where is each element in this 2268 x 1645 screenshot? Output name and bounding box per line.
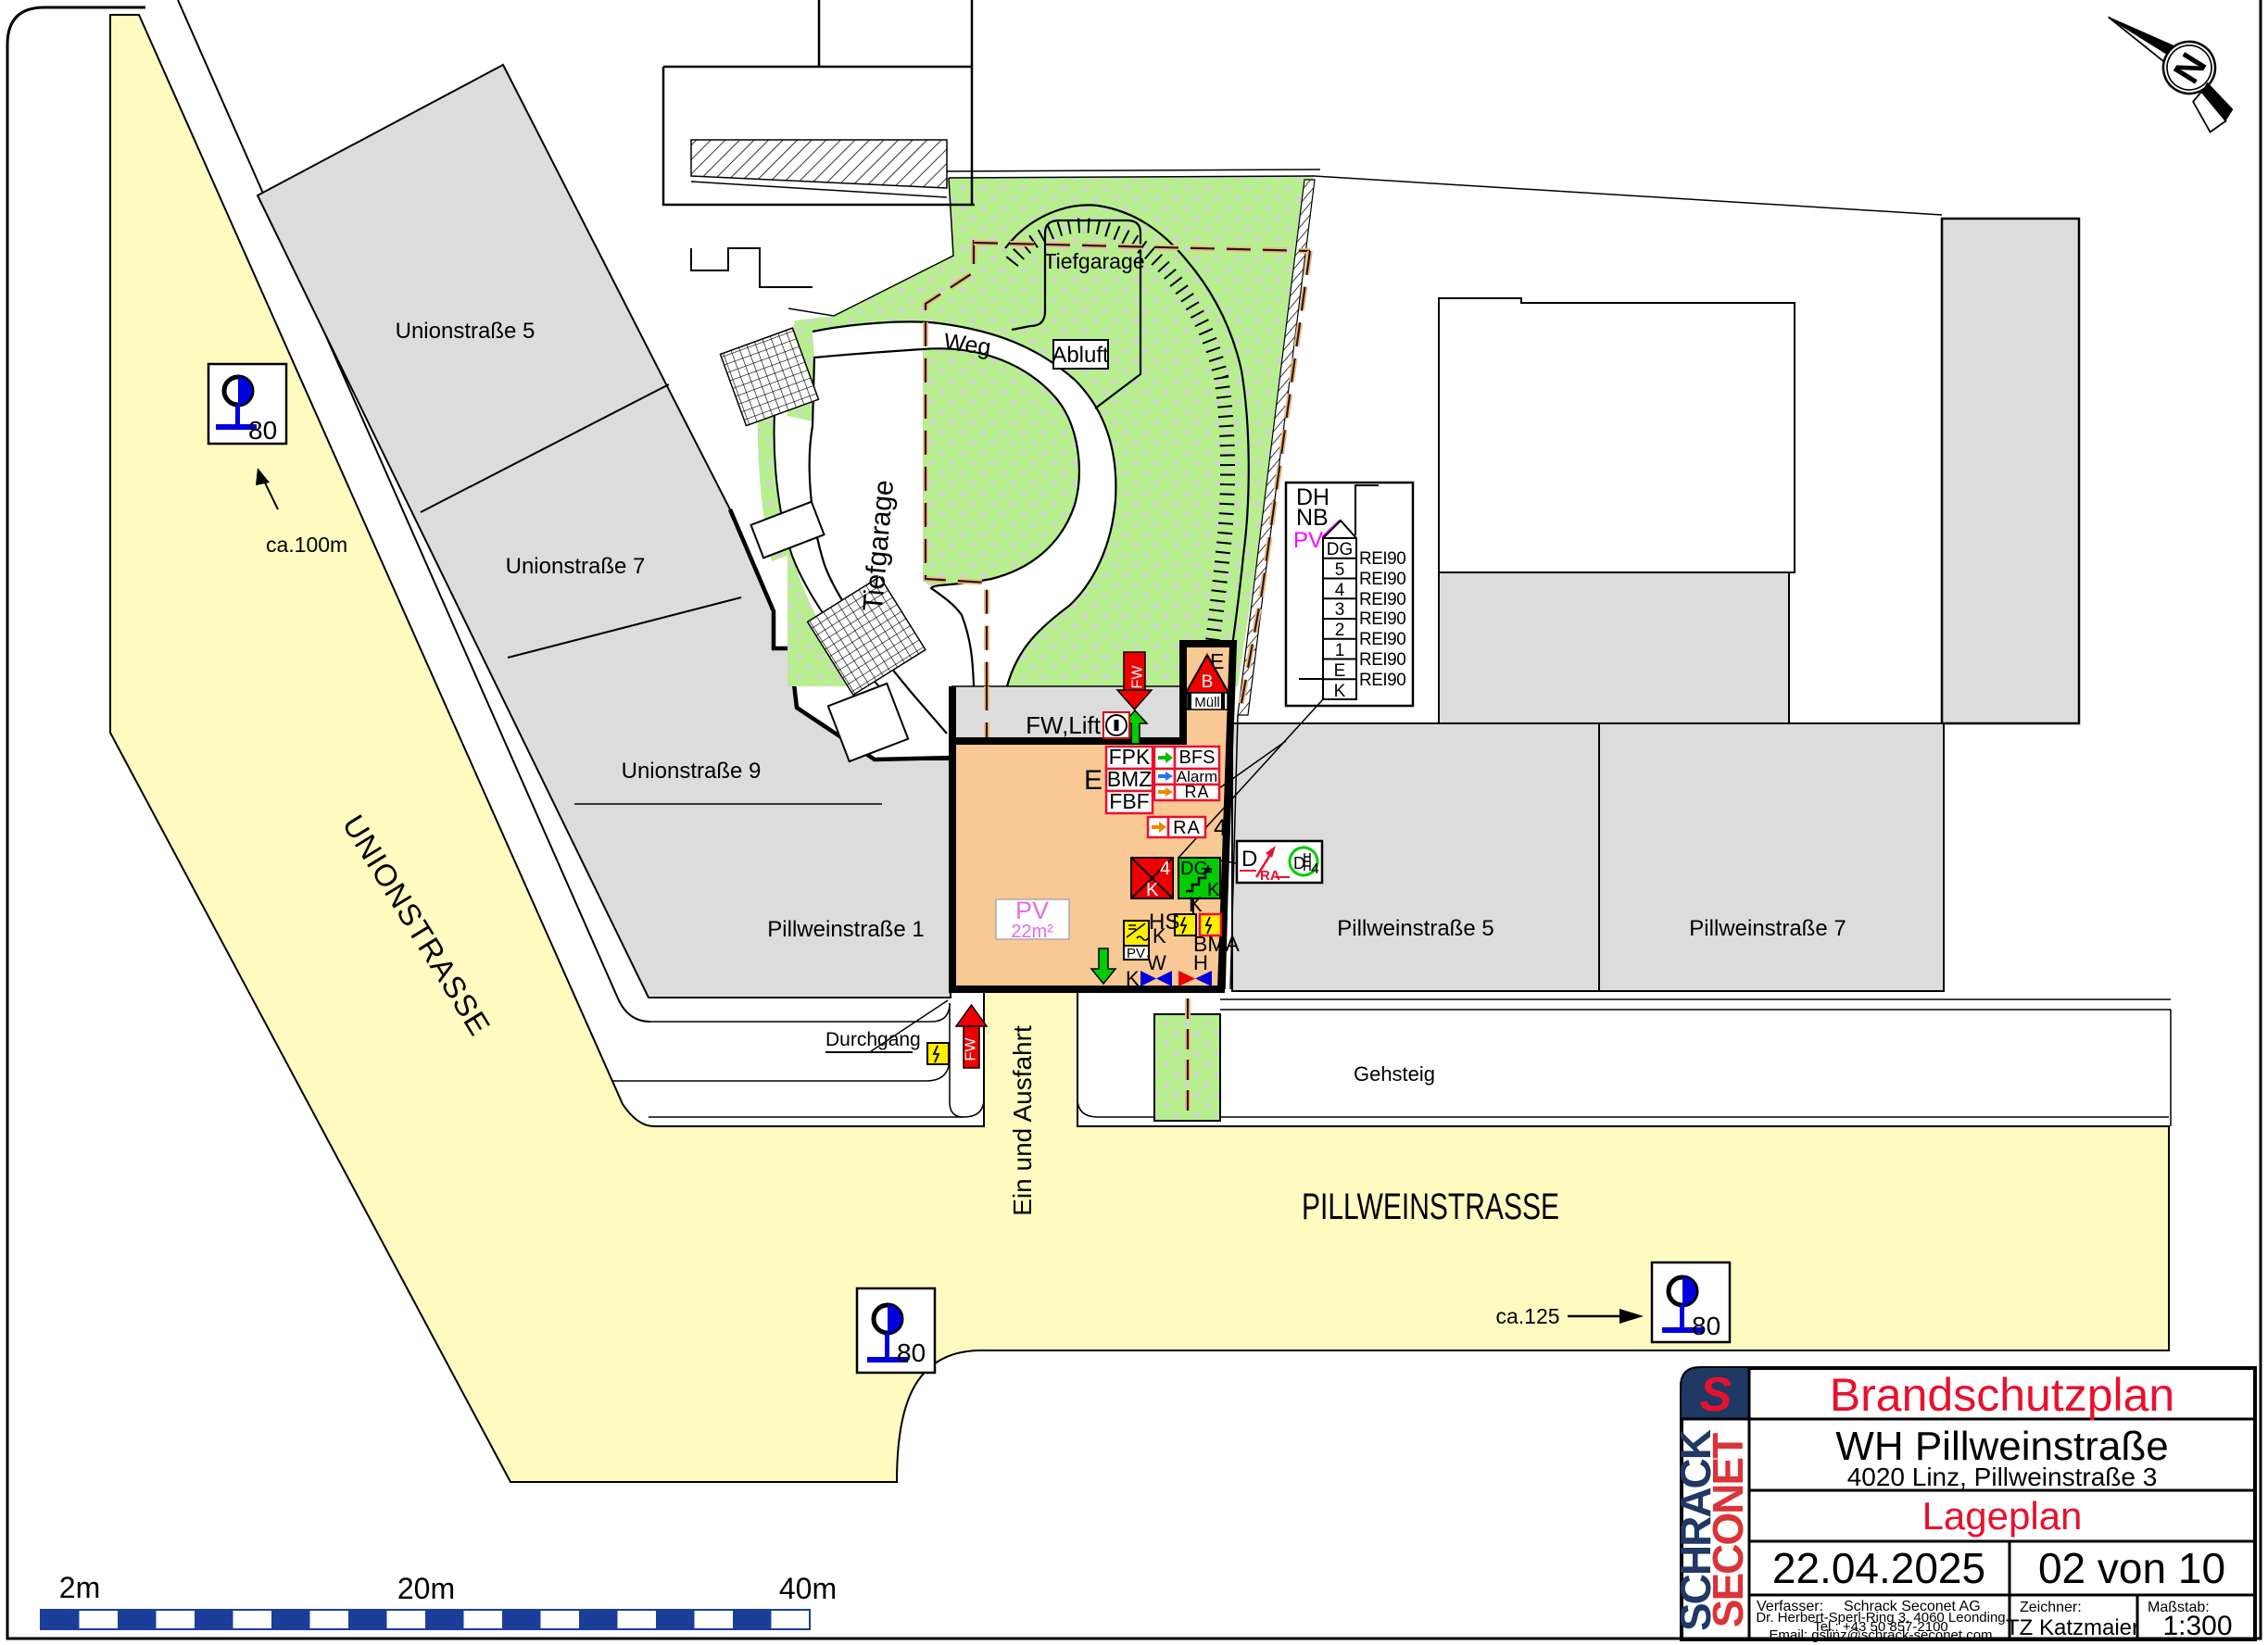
svg-text:PILLWEINSTRASSE: PILLWEINSTRASSE: [1302, 1187, 1559, 1227]
svg-text:K: K: [1126, 967, 1140, 990]
svg-text:B: B: [1202, 672, 1214, 692]
svg-text:02 von 10: 02 von 10: [2038, 1544, 2225, 1592]
svg-text:80: 80: [897, 1338, 926, 1367]
svg-text:Tiefgarage: Tiefgarage: [1043, 249, 1144, 273]
svg-text:Unionstraße 5: Unionstraße 5: [396, 319, 535, 344]
svg-text:4020 Linz, Pillweinstraße 3: 4020 Linz, Pillweinstraße 3: [1847, 1463, 2158, 1491]
svg-text:4: 4: [1160, 859, 1170, 879]
svg-text:FPK: FPK: [1109, 745, 1151, 769]
svg-text:REI90: REI90: [1359, 570, 1405, 589]
svg-text:Müll: Müll: [1194, 695, 1220, 710]
svg-text:80: 80: [248, 416, 277, 445]
svg-text:REI90: REI90: [1359, 549, 1405, 569]
svg-text:W: W: [1147, 951, 1166, 974]
svg-text:REI90: REI90: [1359, 630, 1405, 649]
svg-text:5: 5: [1335, 560, 1345, 580]
svg-text:REI90: REI90: [1359, 609, 1405, 629]
svg-text:Pillweinstraße 7: Pillweinstraße 7: [1689, 916, 1846, 941]
svg-text:BFS: BFS: [1179, 747, 1216, 768]
svg-text:Pillweinstraße 1: Pillweinstraße 1: [767, 917, 924, 942]
svg-text:RA: RA: [1173, 818, 1201, 838]
svg-text:20m: 20m: [397, 1572, 455, 1605]
svg-text:3: 3: [1335, 600, 1345, 620]
svg-text:2: 2: [1335, 621, 1345, 640]
svg-text:Unionstraße 7: Unionstraße 7: [506, 554, 646, 579]
svg-text:FW: FW: [1130, 665, 1146, 689]
svg-text:PV: PV: [1015, 897, 1049, 924]
svg-text:Pillweinstraße 5: Pillweinstraße 5: [1337, 916, 1493, 941]
svg-text:NB: NB: [1296, 505, 1329, 531]
svg-text:FW,Lift: FW,Lift: [1026, 711, 1102, 739]
svg-text:K: K: [1334, 682, 1346, 701]
svg-text:BMZ: BMZ: [1107, 767, 1153, 791]
svg-text:Abluft: Abluft: [1052, 343, 1109, 368]
svg-text:Brandschutzplan: Brandschutzplan: [1830, 1369, 2174, 1421]
svg-text:DG: DG: [1327, 540, 1354, 559]
svg-text:40m: 40m: [779, 1572, 837, 1605]
svg-text:PV: PV: [1293, 528, 1323, 553]
svg-text:1: 1: [1335, 641, 1345, 660]
svg-text:4: 4: [1335, 581, 1345, 600]
svg-text:Zeichner:: Zeichner:: [2020, 1600, 2082, 1615]
svg-text:E: E: [1084, 765, 1102, 796]
svg-text:REI90: REI90: [1359, 671, 1405, 690]
svg-text:Ein und Ausfahrt: Ein und Ausfahrt: [1008, 1025, 1037, 1216]
svg-text:22.04.2025: 22.04.2025: [1772, 1544, 1985, 1592]
svg-text:PV: PV: [1127, 946, 1145, 961]
svg-text:Unionstraße 9: Unionstraße 9: [622, 759, 762, 784]
svg-text:1:300: 1:300: [2162, 1611, 2232, 1641]
svg-text:Gehsteig: Gehsteig: [1354, 1062, 1435, 1086]
svg-text:ca.100m: ca.100m: [266, 533, 347, 557]
svg-text:DG: DG: [1180, 859, 1208, 879]
svg-text:S: S: [1700, 1368, 1732, 1422]
svg-text:80: 80: [1692, 1312, 1720, 1340]
svg-text:Lageplan: Lageplan: [1922, 1494, 2083, 1538]
svg-text:D: D: [1293, 854, 1305, 873]
svg-text:2m: 2m: [59, 1571, 100, 1604]
svg-text:TZ Katzmaier: TZ Katzmaier: [2006, 1615, 2139, 1640]
svg-text:K: K: [1207, 880, 1220, 900]
svg-text:FW: FW: [964, 1037, 979, 1061]
svg-text:4: 4: [1311, 861, 1319, 877]
svg-text:H: H: [1193, 951, 1208, 974]
svg-text:RA: RA: [1184, 783, 1209, 801]
svg-text:4: 4: [1214, 815, 1227, 841]
svg-text:ca.125: ca.125: [1495, 1304, 1559, 1328]
svg-text:Durchgang: Durchgang: [825, 1029, 921, 1050]
svg-text:REI90: REI90: [1359, 590, 1405, 609]
svg-text:K: K: [1153, 924, 1166, 948]
svg-text:K: K: [1189, 893, 1203, 916]
svg-text:E: E: [1334, 661, 1346, 681]
svg-text:D: D: [1241, 847, 1257, 872]
svg-text:RA: RA: [1260, 868, 1280, 884]
svg-text:REI90: REI90: [1359, 650, 1405, 670]
svg-text:Email: gslinz@schrack-seconet.: Email: gslinz@schrack-seconet.com: [1769, 1627, 1992, 1643]
svg-text:FBF: FBF: [1109, 789, 1149, 813]
svg-text:K: K: [1146, 880, 1159, 900]
svg-text:22m²: 22m²: [1011, 922, 1053, 942]
svg-text:SECONET: SECONET: [1704, 1433, 1752, 1627]
